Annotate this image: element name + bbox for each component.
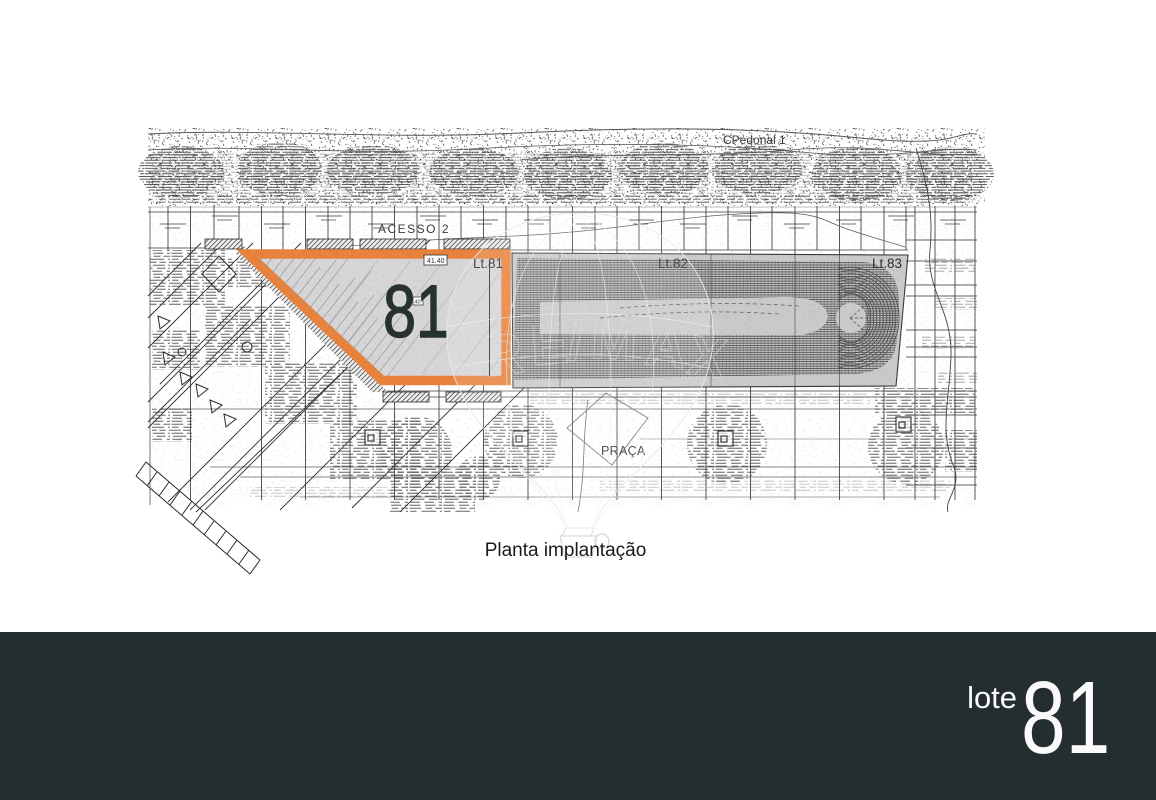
svg-text:81: 81 bbox=[1021, 659, 1110, 775]
svg-text:M: M bbox=[589, 307, 639, 372]
svg-text:R: R bbox=[478, 320, 527, 390]
svg-text:A: A bbox=[643, 313, 690, 380]
svg-text:lote: lote bbox=[967, 680, 1017, 715]
svg-text:CPedonal 1: CPedonal 1 bbox=[723, 133, 786, 147]
svg-text:/: / bbox=[568, 309, 584, 372]
svg-text:E: E bbox=[528, 312, 570, 377]
svg-text:Planta implantação: Planta implantação bbox=[485, 540, 647, 561]
